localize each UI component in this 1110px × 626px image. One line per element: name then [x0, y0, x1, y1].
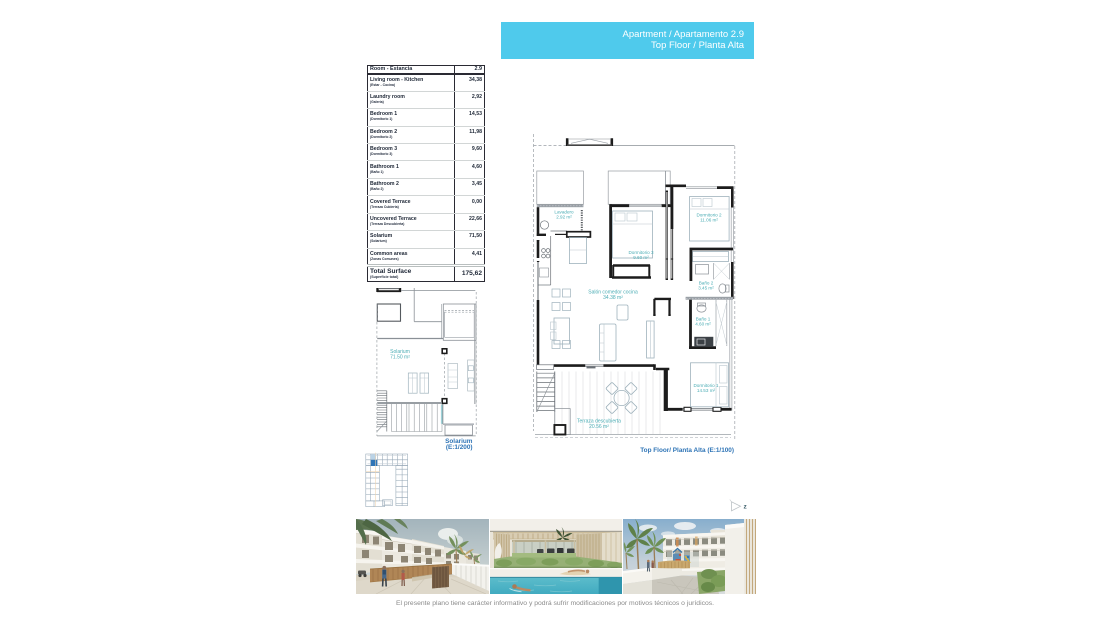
svg-text:34.38 m²: 34.38 m²: [603, 295, 623, 301]
svg-text:9.60 m²: 9.60 m²: [633, 255, 649, 260]
svg-text:3.45 m²: 3.45 m²: [698, 286, 714, 291]
svg-text:4.60 m²: 4.60 m²: [695, 322, 711, 327]
svg-text:z: z: [744, 503, 748, 510]
svg-text:71.50 m²: 71.50 m²: [390, 354, 410, 360]
svg-text:11.06 m²: 11.06 m²: [700, 218, 718, 223]
svg-text:2.92 m²: 2.92 m²: [556, 215, 572, 220]
svg-text:20.56 m²: 20.56 m²: [589, 424, 609, 430]
svg-text:14.53 m²: 14.53 m²: [697, 388, 716, 393]
